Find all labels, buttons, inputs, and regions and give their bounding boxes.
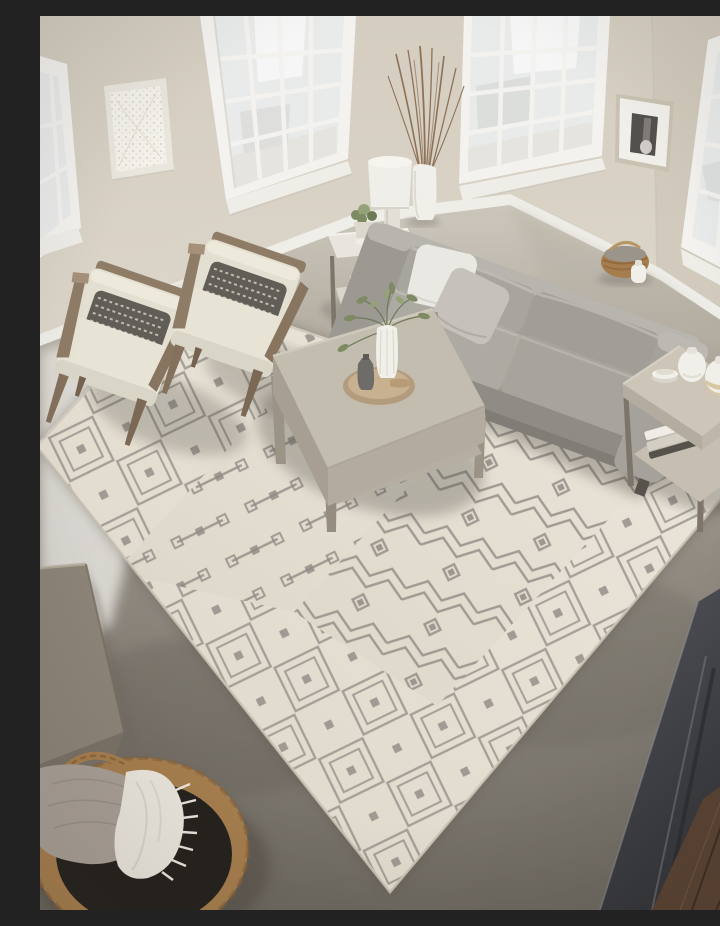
- living-room-photo: Overhead photo of a bright loft living r…: [40, 16, 720, 910]
- vignette: [40, 16, 720, 910]
